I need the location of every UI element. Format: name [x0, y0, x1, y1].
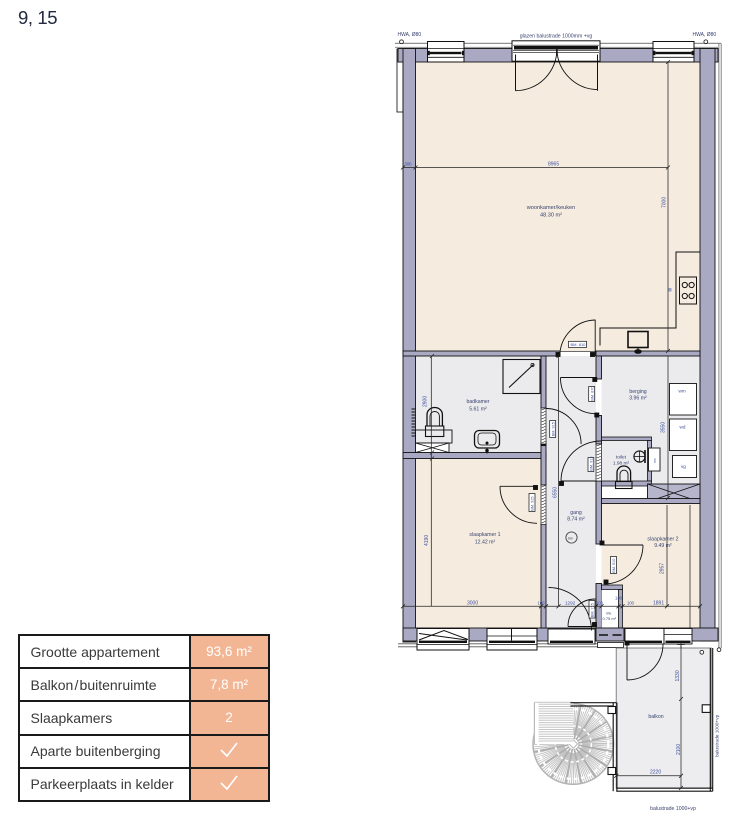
svg-text:mk: mk [606, 611, 611, 616]
svg-text:BM. 915: BM. 915 [531, 496, 535, 510]
svg-text:4190: 4190 [424, 535, 430, 546]
svg-text:HWA, Ø80: HWA, Ø80 [693, 32, 717, 38]
svg-text:BM. 715: BM. 715 [591, 603, 595, 617]
svg-text:100: 100 [627, 601, 635, 606]
svg-text:HWA, Ø80: HWA, Ø80 [398, 32, 422, 38]
svg-text:vg: vg [681, 464, 686, 469]
svg-text:8965: 8965 [548, 162, 559, 168]
svg-text:3550: 3550 [661, 422, 667, 433]
svg-text:balustrade 1000+vp: balustrade 1000+vp [715, 714, 721, 757]
svg-text:2220: 2220 [650, 770, 661, 776]
svg-text:mv: mv [653, 458, 657, 463]
svg-text:100: 100 [596, 601, 604, 606]
svg-text:balkon: balkon [648, 714, 663, 720]
svg-text:BM. 915: BM. 915 [551, 422, 555, 436]
svg-text:1.98 m²: 1.98 m² [613, 461, 630, 467]
svg-text:300: 300 [405, 162, 413, 167]
svg-text:2100: 2100 [676, 744, 682, 755]
svg-text:8.74 m²: 8.74 m² [567, 517, 585, 523]
svg-text:BM. 810: BM. 810 [571, 342, 587, 347]
svg-text:slaapkamer 1: slaapkamer 1 [469, 532, 500, 538]
svg-text:9.49 m²: 9.49 m² [654, 543, 672, 549]
svg-text:gang: gang [570, 510, 582, 516]
svg-text:berging: berging [629, 389, 646, 395]
svg-text:slaapkamer 2: slaapkamer 2 [647, 537, 678, 543]
svg-text:1891: 1891 [653, 601, 664, 607]
svg-text:BM. 913: BM. 913 [590, 456, 594, 470]
svg-text:BM. 910: BM. 910 [612, 559, 616, 573]
svg-text:wm: wm [679, 389, 686, 394]
svg-text:wd: wd [680, 425, 686, 430]
svg-text:glazen balustrade 1000mm +vg: glazen balustrade 1000mm +vg [520, 34, 593, 40]
svg-text:1330: 1330 [675, 670, 681, 681]
svg-text:mv: mv [568, 535, 573, 540]
svg-text:48.30 m²: 48.30 m² [540, 213, 562, 219]
svg-text:0.75 m²: 0.75 m² [603, 616, 617, 621]
svg-text:BM. 870: BM. 870 [590, 386, 594, 400]
svg-text:1292: 1292 [565, 601, 576, 606]
svg-text:balustrade 1000+vp: balustrade 1000+vp [650, 806, 696, 812]
svg-text:3000: 3000 [467, 601, 478, 607]
svg-text:130: 130 [615, 596, 623, 601]
svg-text:7000: 7000 [662, 197, 668, 208]
svg-text:2900: 2900 [423, 396, 429, 407]
svg-text:6550: 6550 [553, 487, 559, 498]
svg-text:toilet: toilet [616, 455, 627, 461]
svg-text:badkamer: badkamer [466, 399, 489, 405]
svg-text:3.96 m²: 3.96 m² [629, 396, 647, 402]
svg-text:100: 100 [538, 601, 546, 606]
svg-text:5.61 m²: 5.61 m² [469, 407, 487, 413]
svg-text:2957: 2957 [660, 563, 666, 574]
svg-text:woonkamer/keuken: woonkamer/keuken [526, 205, 576, 211]
svg-text:12.42 m²: 12.42 m² [475, 540, 496, 546]
